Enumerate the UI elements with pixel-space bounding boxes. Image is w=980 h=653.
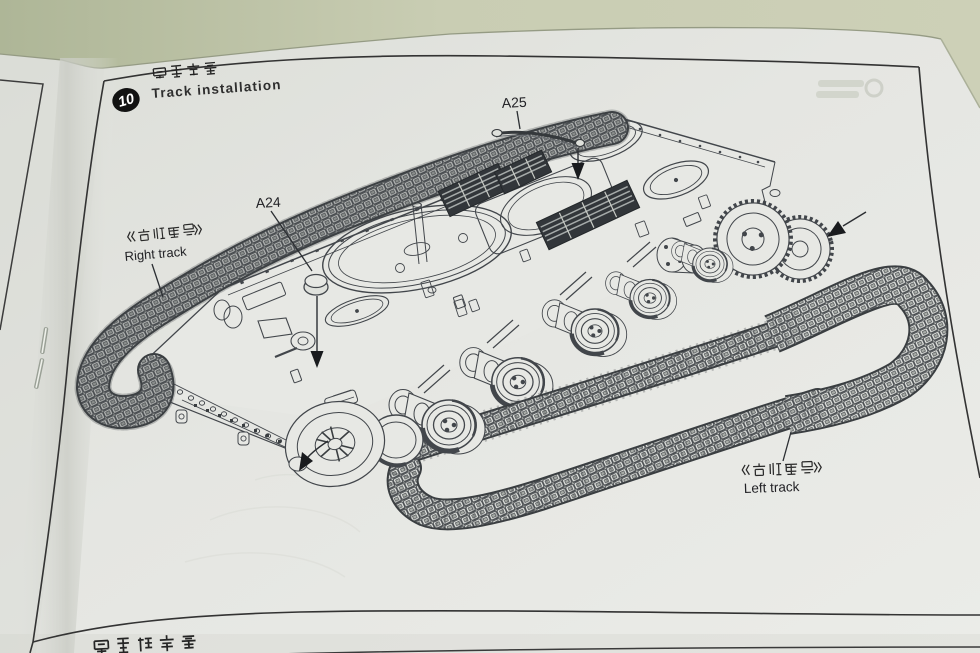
svg-text:A25: A25 [501,94,527,111]
svg-text:Left track: Left track [744,479,800,496]
svg-text:A24: A24 [255,194,281,211]
